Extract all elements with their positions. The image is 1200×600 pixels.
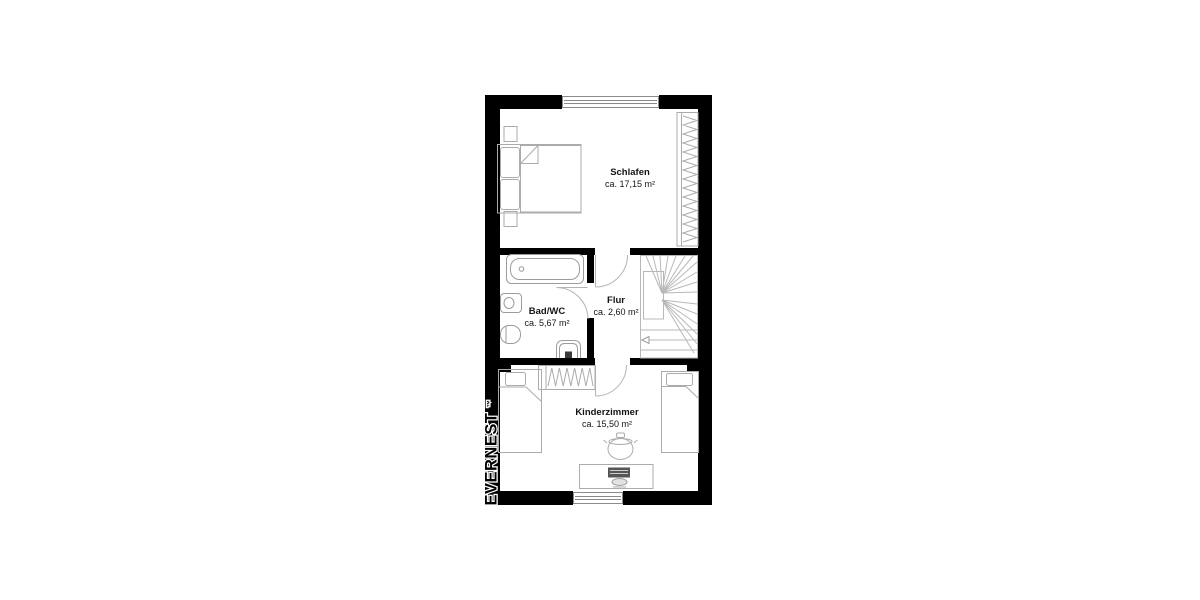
nightstand-top <box>504 127 517 142</box>
door-schlafen <box>596 255 628 287</box>
wall-schlafen-bottom-right <box>630 248 698 255</box>
staircase <box>641 256 698 359</box>
room-area-bad: ca. 5,67 m² <box>524 318 569 328</box>
wall-bottom-right <box>623 491 712 505</box>
wall-bad-right-lower <box>587 318 594 365</box>
wall-right <box>698 95 712 505</box>
laptop <box>608 468 630 478</box>
brand-trademark-symbol: ™ <box>485 399 494 407</box>
desk-chair <box>612 479 627 488</box>
wardrobe-kinderzimmer <box>539 366 596 390</box>
room-label-flur: Flur <box>607 295 625 306</box>
nightstand-bottom <box>504 212 517 227</box>
wall-kinder-top-right <box>630 358 698 365</box>
room-area-kinderzimmer: ca. 15,50 m² <box>582 419 632 429</box>
double-bed <box>498 145 582 214</box>
brand-watermark: EVERNEST ™ <box>483 399 501 505</box>
window-top <box>563 97 659 108</box>
window-bottom <box>574 493 623 504</box>
wall-pilaster-left <box>500 365 511 372</box>
floor-plan-page: Schlafen ca. 17,15 m² Bad/WC ca. 5,67 m²… <box>0 0 1200 600</box>
wardrobe-schlafen <box>677 113 698 247</box>
wall-top-left <box>485 95 562 109</box>
floor-plan-drawing: Schlafen ca. 17,15 m² Bad/WC ca. 5,67 m²… <box>0 0 1200 600</box>
washbasin-bottom <box>557 341 581 359</box>
single-bed-left <box>499 370 542 453</box>
door-kinderzimmer <box>596 365 627 396</box>
single-bed-right <box>662 372 699 453</box>
desk <box>580 465 654 489</box>
stair-direction-arrow <box>642 337 660 344</box>
toy-pot <box>604 433 638 460</box>
wall-kinder-top-left <box>500 358 595 365</box>
wall-bad-right-upper <box>587 248 594 283</box>
bathtub <box>507 255 584 284</box>
room-area-flur: ca. 2,60 m² <box>593 307 638 317</box>
brand-watermark-text: EVERNEST <box>483 413 501 506</box>
wall-top-right <box>659 95 712 109</box>
faucet <box>565 352 572 359</box>
wall-pilaster-right <box>687 365 698 372</box>
room-area-schlafen: ca. 17,15 m² <box>605 179 655 189</box>
room-label-schlafen: Schlafen <box>610 167 650 178</box>
wall-schlafen-bottom-left <box>500 248 595 255</box>
toilet <box>501 326 521 344</box>
room-label-kinderzimmer: Kinderzimmer <box>575 407 639 418</box>
washbasin-left <box>501 294 522 313</box>
room-label-bad: Bad/WC <box>529 306 566 317</box>
